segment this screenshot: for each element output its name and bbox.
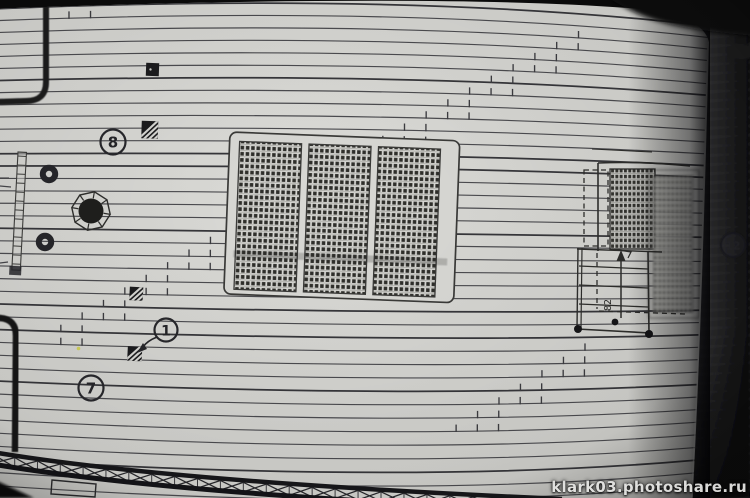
callout-12: 12 xyxy=(721,233,745,257)
vignette xyxy=(0,0,750,498)
svg-text:8: 8 xyxy=(108,134,118,152)
watermark: klark03.photoshare.ru xyxy=(551,478,747,496)
svg-text:7: 7 xyxy=(86,380,96,398)
svg-text:12: 12 xyxy=(726,241,741,253)
photo-of-plan-page: 82 8 1 7 xyxy=(0,0,750,498)
svg-text:1: 1 xyxy=(161,324,171,340)
